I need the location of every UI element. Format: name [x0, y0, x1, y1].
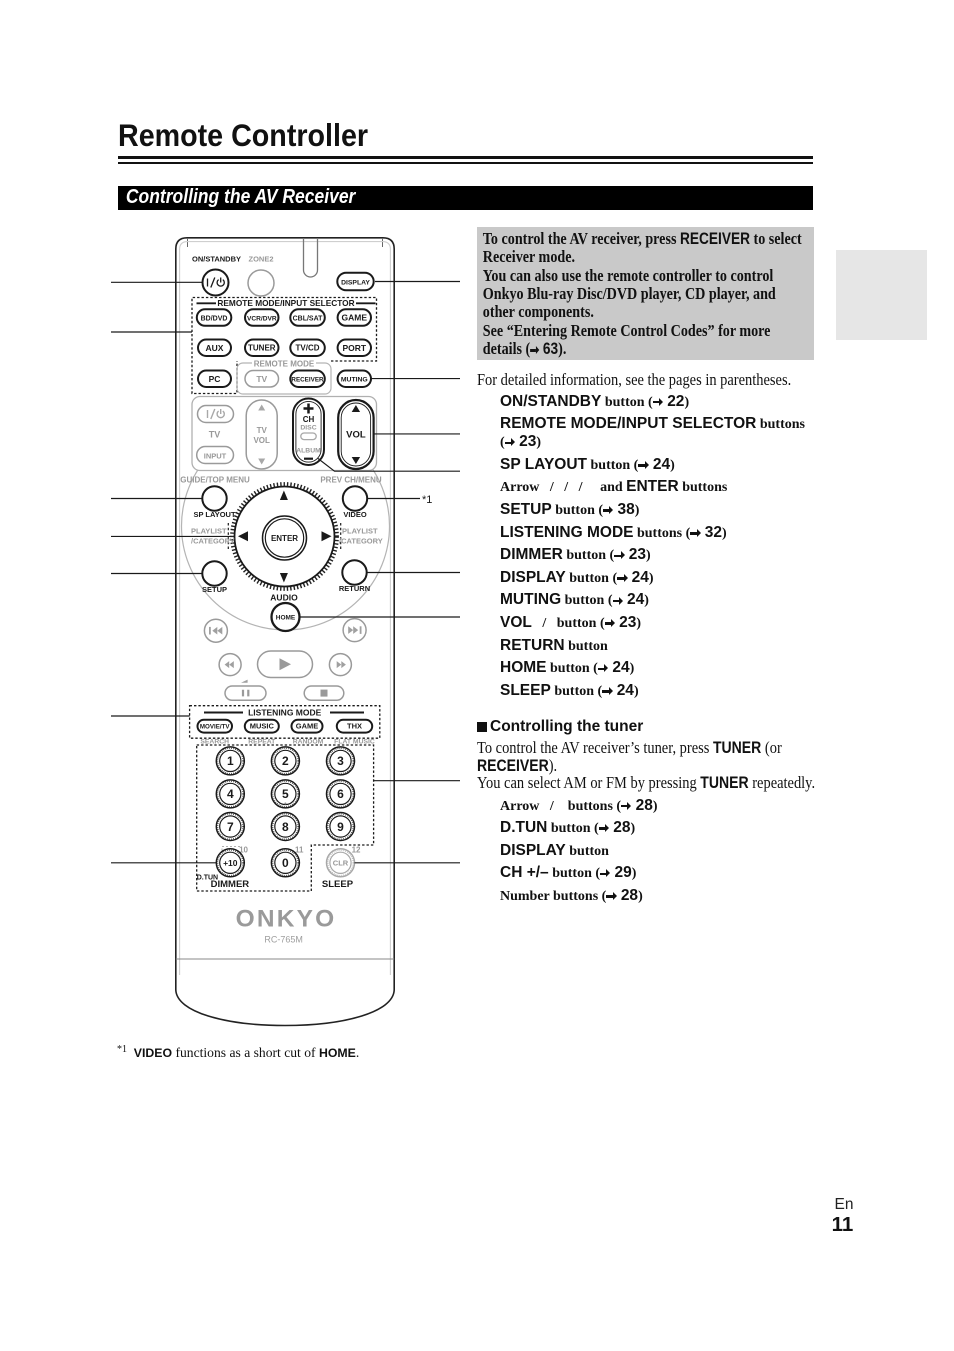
svg-text:DIMMER: DIMMER — [211, 879, 250, 890]
svg-text:ZONE2: ZONE2 — [248, 255, 273, 264]
svg-text:MUTING: MUTING — [341, 376, 368, 383]
svg-text:LISTENING MODE: LISTENING MODE — [248, 707, 322, 717]
svg-text:12: 12 — [352, 846, 361, 855]
svg-text:RC-765M: RC-765M — [264, 935, 303, 945]
svg-text:CBL/SAT: CBL/SAT — [293, 315, 324, 322]
svg-text:*1: *1 — [422, 494, 432, 506]
svg-text:6: 6 — [337, 787, 344, 801]
svg-text:PLAYLIST: PLAYLIST — [191, 527, 227, 536]
svg-text:PC: PC — [209, 374, 221, 384]
svg-text:CH: CH — [303, 415, 315, 424]
svg-text:HOME: HOME — [276, 615, 296, 622]
svg-text:BD/DVD: BD/DVD — [201, 315, 228, 322]
svg-text:VOL: VOL — [253, 436, 270, 445]
svg-text:RECEIVER: RECEIVER — [291, 376, 324, 383]
svg-text:GAME: GAME — [296, 722, 319, 731]
svg-text:THX: THX — [347, 722, 362, 731]
svg-text:9: 9 — [337, 820, 344, 834]
svg-text:PREV CH/MENU: PREV CH/MENU — [320, 476, 382, 485]
svg-text:3: 3 — [337, 754, 344, 768]
svg-text:AUX: AUX — [206, 343, 224, 353]
svg-text:/CATEGORY: /CATEGORY — [191, 537, 235, 546]
svg-text:/CATEGORY: /CATEGORY — [339, 537, 383, 546]
svg-text:MOVIE/TV: MOVIE/TV — [200, 723, 230, 730]
svg-text:7: 7 — [227, 820, 234, 834]
svg-text:TV: TV — [256, 374, 267, 384]
svg-text:ALBUM: ALBUM — [296, 448, 321, 455]
svg-text:GAME: GAME — [342, 313, 368, 323]
svg-text:MUSIC: MUSIC — [250, 722, 275, 731]
svg-text:SP LAYOUT: SP LAYOUT — [193, 510, 236, 519]
svg-text:VCR/DVR: VCR/DVR — [247, 315, 277, 322]
svg-text:ENTER: ENTER — [271, 534, 298, 543]
svg-text:0: 0 — [282, 856, 289, 870]
svg-text:REMOTE MODE/INPUT SELECTOR: REMOTE MODE/INPUT SELECTOR — [217, 298, 354, 308]
svg-text:8: 8 — [282, 820, 289, 834]
svg-text:SETUP: SETUP — [202, 585, 227, 594]
svg-text:TV: TV — [209, 430, 221, 440]
svg-text:TUNER: TUNER — [248, 344, 276, 353]
svg-text:VIDEO: VIDEO — [343, 510, 367, 519]
svg-text:PORT: PORT — [342, 343, 366, 353]
svg-text:INPUT: INPUT — [204, 451, 227, 460]
svg-text:SLEEP: SLEEP — [322, 879, 354, 890]
svg-text:TV/CD: TV/CD — [296, 344, 320, 353]
svg-text:CLR: CLR — [333, 859, 349, 868]
svg-text:PLAYLIST: PLAYLIST — [342, 527, 378, 536]
svg-text:GUIDE/TOP MENU: GUIDE/TOP MENU — [180, 476, 250, 485]
svg-text:1: 1 — [227, 754, 234, 768]
svg-text:DISPLAY: DISPLAY — [341, 280, 370, 287]
svg-text:2: 2 — [282, 754, 289, 768]
svg-text:ONKYO: ONKYO — [236, 906, 337, 933]
svg-text:+10: +10 — [223, 858, 238, 868]
svg-text:REMOTE MODE: REMOTE MODE — [254, 359, 315, 368]
svg-text:4: 4 — [227, 787, 234, 801]
svg-text:TV: TV — [257, 426, 268, 435]
svg-text:5: 5 — [282, 787, 289, 801]
svg-text:AUDIO: AUDIO — [270, 593, 298, 603]
svg-text:VOL: VOL — [346, 430, 366, 441]
svg-text:RETURN: RETURN — [339, 584, 370, 593]
svg-text:DISC: DISC — [300, 425, 316, 432]
svg-text:ON/STANDBY: ON/STANDBY — [192, 255, 241, 264]
